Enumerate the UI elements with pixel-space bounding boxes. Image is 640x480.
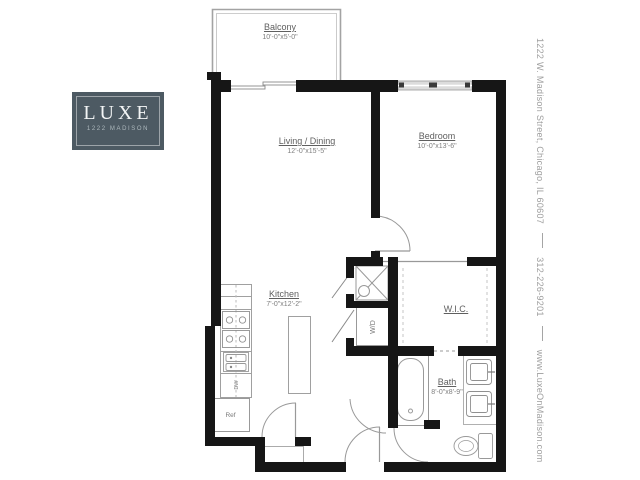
wall xyxy=(207,72,221,80)
wall xyxy=(205,326,215,446)
bath-name: Bath xyxy=(407,377,487,388)
washer-dryer-label: W/D xyxy=(370,320,377,334)
wall xyxy=(296,80,398,92)
wall xyxy=(496,80,506,472)
wall xyxy=(205,437,262,446)
dishwasher-label: DW xyxy=(234,380,240,390)
wall xyxy=(371,88,380,218)
floor-plan-page: LUXE 1222 MADISON 1222 W. Madison Street… xyxy=(0,0,640,480)
room-label-bedroom: Bedroom 10'-0"x13'-6" xyxy=(397,131,477,151)
bedroom-window xyxy=(398,81,472,90)
entry-door-arc xyxy=(345,427,380,462)
bath-dims: 8'-0"x8'-9" xyxy=(407,388,487,397)
wall xyxy=(467,257,506,266)
bath-door-arc xyxy=(394,428,428,462)
balcony-dims: 10'-0"x5'-0" xyxy=(240,33,320,42)
mechanical-unit xyxy=(356,266,388,300)
wall xyxy=(424,420,440,429)
kitchen-dims: 7'-0"x12'-2" xyxy=(244,300,324,309)
plan-details-layer: W/D DW Ref xyxy=(0,0,640,480)
living-dims: 12'-0"x15'-5" xyxy=(247,147,367,156)
balcony-name: Balcony xyxy=(240,22,320,33)
living-name: Living / Dining xyxy=(247,136,367,147)
refrigerator-label: Ref xyxy=(225,412,235,419)
wall xyxy=(346,346,434,356)
wall xyxy=(388,356,398,428)
kitchen-name: Kitchen xyxy=(244,289,324,300)
bedroom-name: Bedroom xyxy=(397,131,477,142)
wall xyxy=(346,294,354,308)
wall xyxy=(384,462,506,472)
balcony-sliding-door xyxy=(229,82,299,89)
balcony-outline xyxy=(213,10,341,81)
entry-niche xyxy=(263,447,304,463)
room-label-wic: W.I.C. xyxy=(416,304,496,315)
wall xyxy=(346,257,383,266)
wall xyxy=(295,437,311,446)
wall xyxy=(458,346,506,356)
wall xyxy=(346,266,354,278)
wall xyxy=(211,80,221,326)
kitchen-island xyxy=(289,317,311,394)
room-label-kitchen: Kitchen 7'-0"x12'-2" xyxy=(244,289,324,309)
kitchen-door-arc xyxy=(262,403,296,437)
wic-name: W.I.C. xyxy=(416,304,496,315)
room-label-bath: Bath 8'-0"x8'-9" xyxy=(407,377,487,397)
room-label-balcony: Balcony 10'-0"x5'-0" xyxy=(240,22,320,42)
bedroom-dims: 10'-0"x13'-6" xyxy=(397,142,477,151)
bedroom-door-arc xyxy=(375,216,410,251)
hall-door-arc xyxy=(350,399,386,433)
room-label-living: Living / Dining 12'-0"x15'-5" xyxy=(247,136,367,156)
wall xyxy=(255,462,346,472)
toilet xyxy=(454,434,493,459)
